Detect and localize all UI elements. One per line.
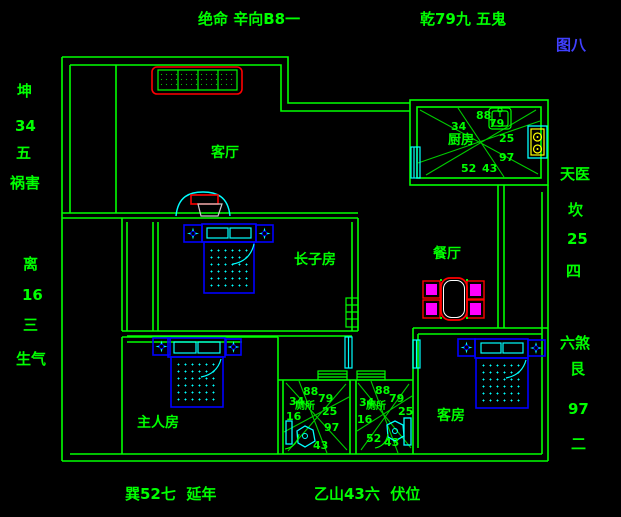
bathR-compass-25: 25 (398, 406, 413, 417)
annotation-left-kun: 坤 (17, 84, 32, 99)
bathR-compass-16: 16 (357, 414, 372, 425)
annotation-right-er: 二 (571, 437, 586, 452)
annotation-left-16: 16 (22, 288, 43, 303)
bathR-compass-43: 43 (384, 437, 399, 448)
label-kitchen: 厨房 (448, 134, 474, 147)
kitchen-compass-79: 79 (489, 118, 504, 129)
kitchen-compass-52: 52 (461, 163, 476, 174)
dining-table-set (423, 278, 484, 320)
bathL-compass-88: 88 (303, 386, 318, 397)
stove (528, 126, 547, 158)
kitchen-compass-43: 43 (482, 163, 497, 174)
bathL-compass-97: 97 (324, 422, 339, 433)
kitchen-compass-34: 34 (451, 121, 466, 132)
annotation-right-kan: 坎 (568, 203, 583, 218)
annotation-left-huohai: 祸害 (10, 176, 40, 191)
bathR-compass-52: 52 (366, 433, 381, 444)
annotation-right-25: 25 (567, 232, 588, 247)
cad-floor-plan: 绝命 辛向B8一 乾79九 五鬼 图八 坤 34 五 祸害 离 16 三 生气 … (0, 0, 621, 517)
label-eldest-son-room: 长子房 (294, 253, 336, 267)
annotation-right-si: 四 (566, 264, 581, 279)
annotation-right-liusha: 六煞 (560, 336, 590, 351)
label-living-room: 客厅 (211, 146, 239, 160)
annotation-top-right: 乾79九 五鬼 (420, 12, 506, 27)
annotation-bottom-left: 巽52七 延年 (125, 487, 216, 502)
mattress-texture-guest (480, 362, 524, 404)
bathR-compass-34: 34 (359, 397, 374, 408)
label-dining-room: 餐厅 (433, 247, 461, 261)
mattress-texture-eldest (208, 247, 250, 290)
mattress-texture-master (175, 361, 219, 403)
annotation-bottom-center: 乙山43六 伏位 (314, 487, 420, 502)
sofa-cushion-texture (159, 72, 236, 89)
bathL-compass-34: 34 (289, 396, 304, 407)
annotation-right-tianyi: 天医 (560, 167, 590, 182)
annotation-left-san: 三 (23, 318, 38, 333)
label-master-room: 主人房 (137, 416, 179, 430)
kitchen-compass-25: 25 (499, 133, 514, 144)
figure-number: 图八 (556, 38, 586, 53)
annotation-left-wu: 五 (16, 146, 31, 161)
annotation-left-34: 34 (15, 119, 36, 134)
annotation-left-li: 离 (23, 257, 38, 272)
bathL-compass-43: 43 (313, 440, 328, 451)
annotation-left-shengqi: 生气 (16, 352, 46, 367)
bathL-compass-25: 25 (322, 406, 337, 417)
annotation-top-center: 绝命 辛向B8一 (198, 12, 300, 27)
kitchen-compass-97: 97 (499, 152, 514, 163)
cyan-windows (345, 147, 420, 368)
bathR-compass-79: 79 (389, 393, 404, 404)
label-guest-room: 客房 (437, 409, 465, 423)
bathL-compass-16: 16 (286, 411, 301, 422)
annotation-right-gen: 艮 (570, 362, 585, 377)
chairs (423, 281, 484, 318)
annotation-right-97: 97 (568, 402, 589, 417)
bathL-compass-79: 79 (318, 393, 333, 404)
